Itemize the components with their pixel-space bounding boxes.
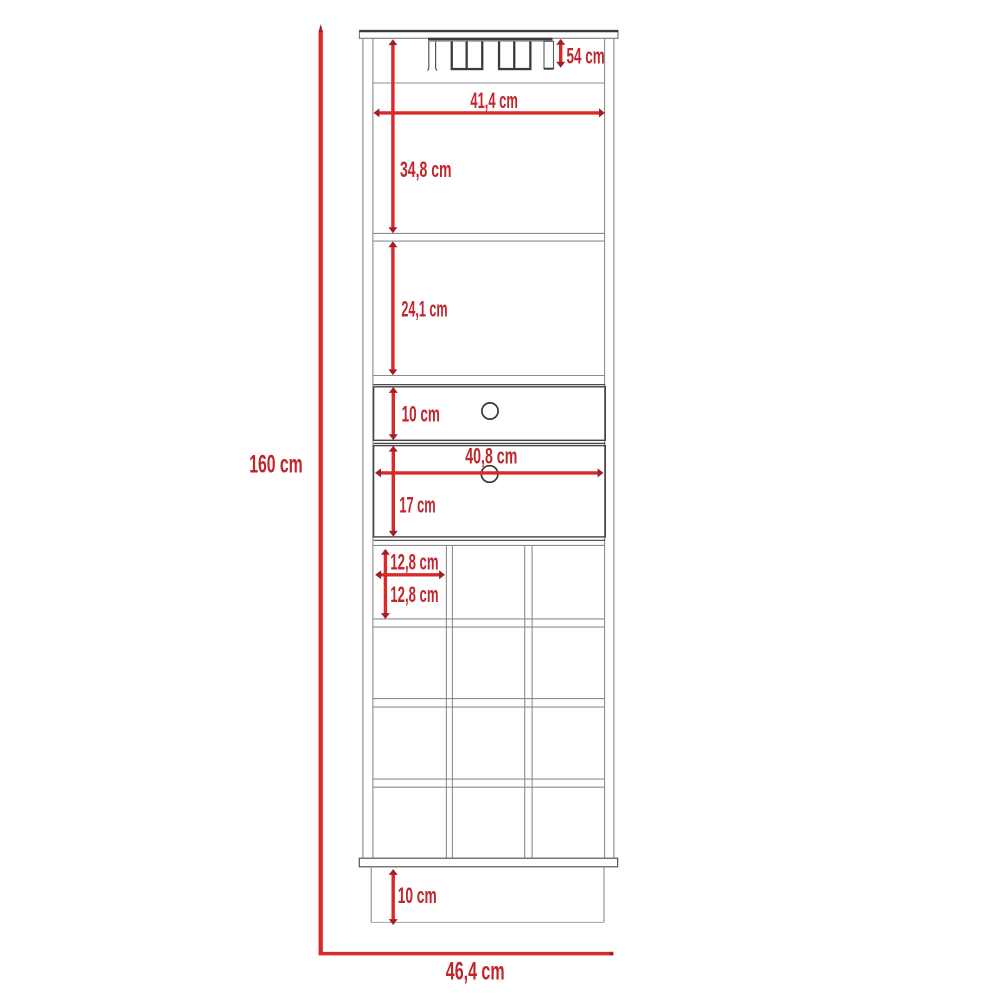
svg-text:46,4 cm: 46,4 cm [446,959,505,986]
svg-text:12,8 cm: 12,8 cm [390,550,438,575]
svg-text:34,8 cm: 34,8 cm [400,157,452,182]
svg-text:41,4 cm: 41,4 cm [470,88,518,113]
svg-text:12,8 cm: 12,8 cm [390,582,438,607]
svg-text:160 cm: 160 cm [249,451,303,479]
svg-text:24,1 cm: 24,1 cm [401,296,447,321]
svg-text:10 cm: 10 cm [398,883,437,908]
svg-text:54 cm: 54 cm [567,44,605,69]
svg-text:10 cm: 10 cm [402,402,440,427]
svg-text:40,8 cm: 40,8 cm [465,443,517,468]
svg-text:17 cm: 17 cm [399,492,435,517]
